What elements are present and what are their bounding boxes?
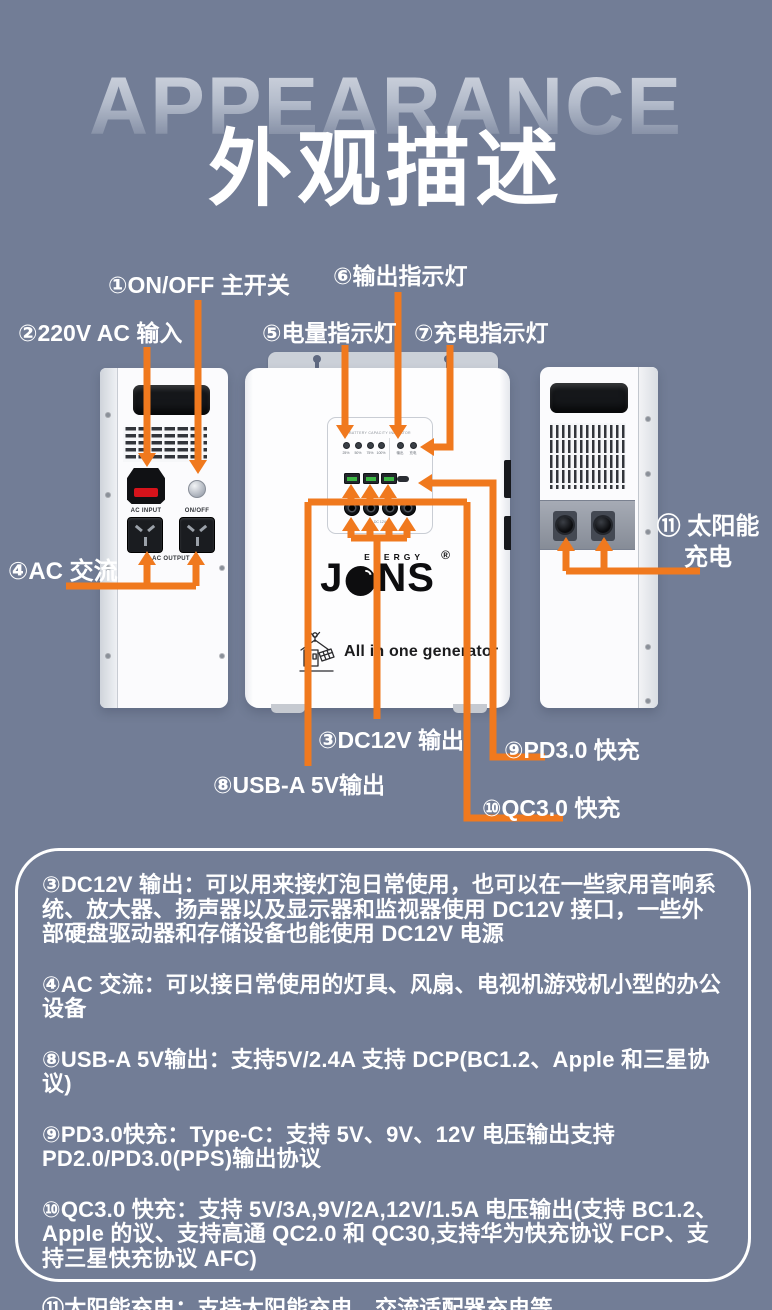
solar-input-panel [540,500,635,550]
device-side-edge [638,367,658,708]
callout-ac-input: ②220V AC 输入 [18,314,182,348]
screw-icon [106,493,110,497]
device-left-side-view: AC INPUT ON/OFF AC OUTPUT [100,368,228,708]
desc-pd30: ⑨PD3.0快充：Type-C：支持 5V、9V、12V 电压输出支持 PD2.… [42,1123,724,1172]
ac-input-label: AC INPUT [120,508,172,514]
solar-port-bezel [591,511,615,541]
onoff-button[interactable] [188,480,206,498]
callout-charge-led: ⑦充电指示灯 [414,314,548,348]
device-front-view: BATTERY CAPACITY INDICATOR 25% 50% 75% 1… [245,368,510,708]
device-foot [271,704,305,713]
brand-energy-text: ENERGY [364,552,424,562]
panel-divider [389,438,390,460]
brand-o-disc [345,566,375,596]
screw-icon [646,699,650,703]
house-solar-icon [295,630,337,674]
solar-input-port[interactable] [595,517,611,533]
battery-led-25 [344,443,349,448]
ac-outlet[interactable] [179,517,215,553]
page-title: 外观描述 [0,102,772,223]
callout-output-led: ⑥输出指示灯 [333,257,467,291]
charging-led [411,443,416,448]
output-led [398,443,403,448]
callout-ac-output: ④AC 交流 [8,551,118,586]
usb-a-port[interactable] [381,473,397,484]
device-foot [453,704,487,713]
tagline: All in one generator [295,630,498,674]
callout-pd30-fastcharge: ⑨PD3.0 快充 [504,731,640,765]
side-port-mark [504,460,511,498]
ac-input-port[interactable] [127,468,165,504]
usb-a-port[interactable] [344,473,360,484]
dc12v-port[interactable] [363,500,379,516]
device-side-edge [100,368,118,708]
screw-icon [646,417,650,421]
screw-icon [106,413,110,417]
screw-icon [220,654,224,658]
screw-icon [646,530,650,534]
brand-letter: J [320,556,343,601]
dc-label-microtext: DC 12V [328,520,432,524]
battery-led-100 [379,443,384,448]
callout-dc12v-output: ③DC12V 输出 [318,721,464,755]
usb-c-port[interactable] [397,476,409,482]
vent-grille [123,427,207,462]
keyhole-slot-icon [444,355,452,363]
ac-input-red-insert [134,488,158,497]
desc-usb: ⑧USB-A 5V输出：支持5V/2.4A 支持 DCP(BC1.2、Apple… [42,1048,724,1097]
dc12v-port[interactable] [400,500,416,516]
registered-mark: ® [441,548,451,562]
keyhole-slot-icon [313,355,321,363]
side-port-mark [504,516,511,550]
callout-qc30-fastcharge: ⑩QC3.0 快充 [482,789,620,823]
vent-grille [550,423,626,489]
carry-handle[interactable] [133,385,210,415]
callout-solar-charge: ⑪ 太阳能 充电 [656,511,760,573]
callout-solar-line1: ⑪ 太阳能 [656,511,760,542]
solar-port-bezel [553,511,577,541]
callout-solar-line2: 充电 [656,542,760,573]
device-right-side-view [540,367,658,708]
brand-logo: ENERGY ® JNS [320,556,435,601]
screw-icon [106,654,110,658]
solar-input-port[interactable] [557,517,573,533]
tagline-text: All in one generator [344,643,498,661]
io-panel: BATTERY CAPACITY INDICATOR 25% 50% 75% 1… [327,417,433,534]
dc12v-port[interactable] [344,500,360,516]
ac-output-label: AC OUTPUT [132,556,210,562]
brand-letters: NS [377,556,435,601]
callout-onoff-switch: ①ON/OFF 主开关 [108,266,290,300]
callout-battery-led: ⑤电量指示灯 [262,314,396,348]
led-label: 充电 [405,451,421,456]
screw-icon [646,645,650,649]
callout-usb-output: ⑧USB-A 5V输出 [213,766,385,800]
ac-outlet[interactable] [127,517,163,553]
screw-icon [220,566,224,570]
battery-led-75 [368,443,373,448]
screw-icon [646,472,650,476]
desc-ac: ④AC 交流：可以接日常使用的灯具、风扇、电视机游戏机小型的办公设备 [42,973,724,1022]
led-label: 100% [373,451,389,455]
panel-header-microtext: BATTERY CAPACITY INDICATOR [328,431,432,435]
battery-led-50 [356,443,361,448]
description-card: ③DC12V 输出：可以用来接灯泡日常使用，也可以在一些家用音响系统、放大器、扬… [15,848,751,1282]
carry-handle[interactable] [550,383,628,413]
onoff-label: ON/OFF [174,508,220,514]
desc-qc30: ⑩QC3.0 快充：支持 5V/3A,9V/2A,12V/1.5A 电压输出(支… [42,1198,724,1272]
desc-dc12v: ③DC12V 输出：可以用来接灯泡日常使用，也可以在一些家用音响系统、放大器、扬… [42,873,724,947]
usb-a-port[interactable] [363,473,379,484]
desc-solar: ⑪太阳能充电：支持太阳能充电，交流适配器充电等。 [42,1297,724,1310]
product-appearance-page: APPEARANCE 外观描述 AC INPUT ON/OFF AC OUTPU… [0,0,772,1310]
dc12v-port[interactable] [382,500,398,516]
